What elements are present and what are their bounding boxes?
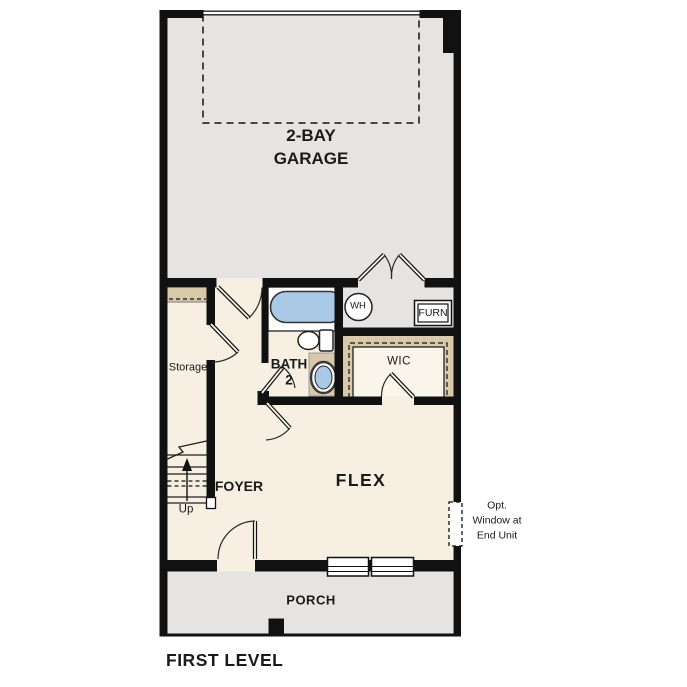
storage-shelf <box>167 288 207 302</box>
bath2-label-line2: 2 <box>271 372 308 388</box>
sink-vanity <box>309 353 337 396</box>
garage-label: 2-BAY GARAGE <box>274 124 349 170</box>
opt-window-note-line1: Opt. <box>472 499 521 514</box>
flex-label: FLEX <box>336 470 387 490</box>
bath2-label: BATH 2 <box>271 357 308 388</box>
opt-window-note: Opt. Window at End Unit <box>472 499 521 544</box>
foyer-label: FOYER <box>215 478 263 494</box>
opt-window-note-line2: Window at <box>472 514 521 529</box>
garage-label-line2: GARAGE <box>274 147 349 170</box>
bathtub <box>268 287 340 331</box>
garage-label-line1: 2-BAY <box>274 124 349 147</box>
optional-window <box>449 502 462 546</box>
furnace-label: FURN <box>418 307 447 319</box>
toilet <box>298 330 333 351</box>
floor-plan: 2-BAY GARAGE Storage BATH 2 WIC WH FURN … <box>0 0 687 687</box>
floor-plan-drawing <box>0 0 687 687</box>
opt-window-note-line3: End Unit <box>472 529 521 544</box>
stairs-up-label: Up <box>179 503 194 516</box>
stair-newel <box>207 498 216 509</box>
porch-column <box>269 619 285 637</box>
wic-label: WIC <box>387 355 411 368</box>
bath2-label-line1: BATH <box>271 357 308 373</box>
water-heater-label: WH <box>350 302 366 313</box>
garage-door <box>203 11 420 15</box>
storage-label: Storage <box>169 362 208 375</box>
porch-label: PORCH <box>286 594 335 609</box>
page-title: FIRST LEVEL <box>166 650 283 671</box>
